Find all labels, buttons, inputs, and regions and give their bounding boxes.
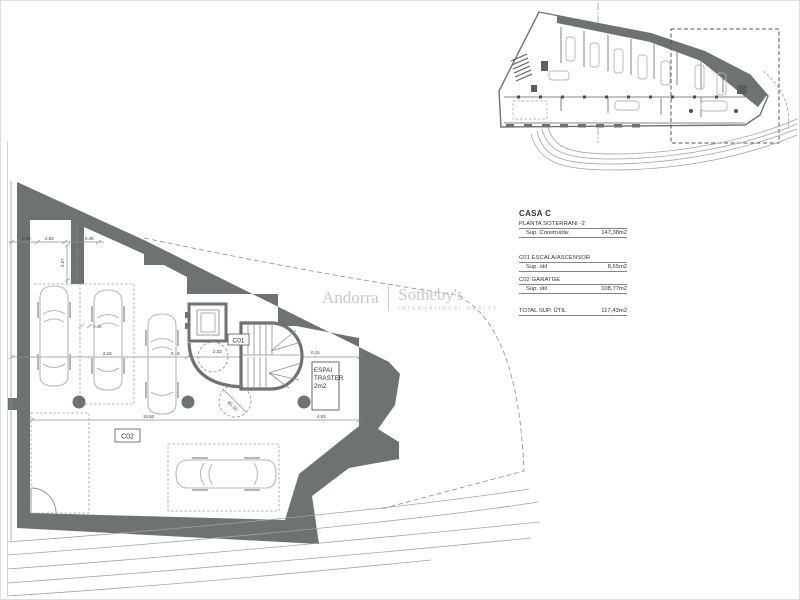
- car: [92, 290, 124, 390]
- storage-line-3: 2m2: [314, 383, 327, 390]
- dim-label: 10.93: [143, 414, 155, 419]
- dim-label: 2.18: [103, 351, 112, 356]
- room-code-line: C01 ESCALA/ASCENSOR: [519, 255, 627, 263]
- built-area-value: 147,38m2: [601, 230, 627, 236]
- car: [38, 286, 70, 386]
- wall-nub: [7, 398, 17, 410]
- car: [146, 314, 178, 414]
- scanned-plan-page: 0.20 2.83 0.45 2.57 0.46 2.18 0.18 2.33 …: [0, 0, 800, 600]
- brand-subtitle: INTERNATIONAL REALTY: [398, 306, 498, 312]
- room-labels: C01 C02: [115, 334, 249, 442]
- elevator: [185, 304, 226, 341]
- storage-line-1: ESPAI: [314, 367, 332, 374]
- room-area-row: Sup. útil 8,65m2: [519, 263, 627, 272]
- room-label-c02: C02: [121, 434, 134, 441]
- total-area-label: TOTAL SUP. ÚTIL: [519, 308, 566, 314]
- contour-lines: [7, 489, 540, 596]
- floor-line: PLANTA SOTERRANI -2: [519, 221, 627, 229]
- brand-divider: [388, 286, 390, 311]
- dim-label: 2.33: [213, 349, 222, 354]
- room-area-value: 108,77m2: [601, 286, 627, 292]
- scan-artifact-line: [7, 141, 8, 596]
- dim-label: Ø1.50: [226, 400, 239, 412]
- built-area-label: Sup. Construïda:: [526, 230, 570, 236]
- dim-label: 4.93: [317, 414, 326, 419]
- dim-label: 0.45: [85, 236, 94, 241]
- dim-label: 2.83: [45, 236, 54, 241]
- built-area-row: Sup. Construïda: 147,38m2: [519, 229, 627, 238]
- storage-line-2: TRASTER: [314, 375, 344, 382]
- room-code-line: C02 GARATGE: [519, 277, 627, 285]
- area-summary: CASA C PLANTA SOTERRANI -2 Sup. Construï…: [519, 209, 627, 316]
- main-floor-plan: 0.20 2.83 0.45 2.57 0.46 2.18 0.18 2.33 …: [7, 181, 400, 544]
- total-area-row: TOTAL SUP. ÚTIL 117,43m2: [519, 307, 627, 316]
- staircase: [241, 323, 302, 389]
- storage-box: ESPAI TRASTER 2m2: [312, 362, 344, 410]
- room-area-value: 8,65m2: [608, 264, 627, 270]
- room-area-label: Sup. útil: [526, 264, 547, 270]
- room-area-label: Sup. útil: [526, 286, 547, 292]
- garage-wall-band: [17, 182, 400, 544]
- total-area-value: 117,43m2: [601, 308, 627, 314]
- dim-label: 2.57: [60, 258, 65, 267]
- car: [176, 458, 276, 490]
- room-area-row: Sup. útil 108,77m2: [519, 285, 627, 294]
- room-label-c01: C01: [233, 338, 245, 345]
- overview-plan: [499, 3, 797, 170]
- door-swing: [31, 488, 56, 513]
- columns: [73, 396, 311, 409]
- dim-label: 0.20: [22, 236, 31, 241]
- brand-watermark: Andorra Sotheby's INTERNATIONAL REALTY: [322, 286, 498, 312]
- summary-title: CASA C: [519, 209, 627, 218]
- brand-sothebys: Sotheby's: [398, 286, 498, 304]
- brand-andorra: Andorra: [322, 286, 379, 308]
- dim-label: 0.15: [311, 350, 320, 355]
